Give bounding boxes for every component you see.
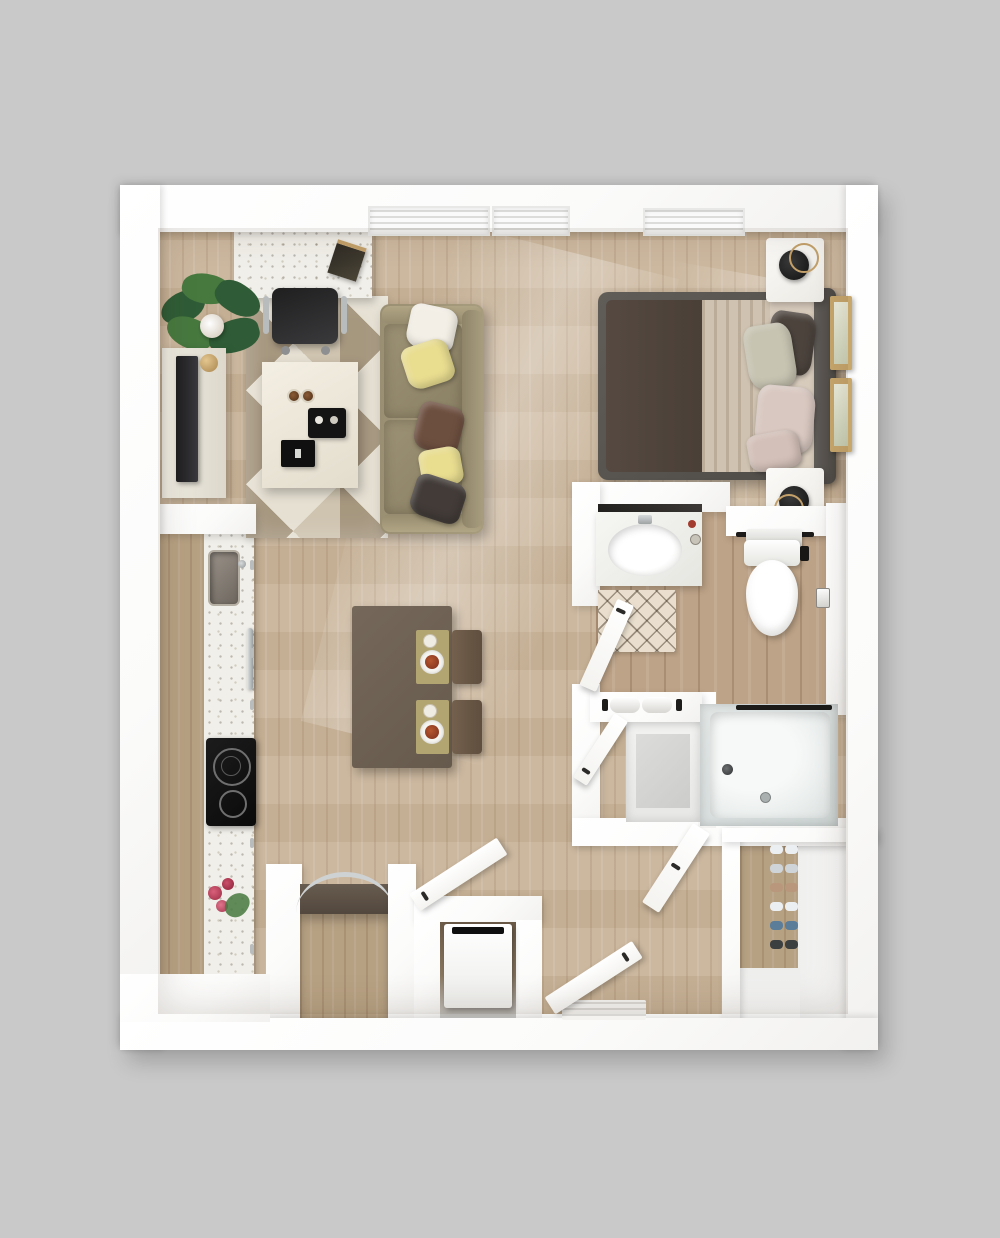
office-chair-wheel-2 bbox=[321, 346, 330, 355]
shoe-pair bbox=[785, 845, 798, 854]
door-handle bbox=[581, 767, 591, 775]
bathtub-towel-bar bbox=[736, 705, 832, 710]
pass-through-counter bbox=[144, 504, 256, 534]
coffee-cup-1 bbox=[287, 389, 301, 403]
shoe-pair bbox=[770, 845, 783, 854]
office-chair-arm-right bbox=[341, 296, 347, 334]
toilet-paper-holder bbox=[816, 588, 830, 608]
decor-dish bbox=[200, 354, 218, 372]
cabinet-handle bbox=[250, 838, 254, 848]
shoe-pair bbox=[785, 940, 798, 949]
vanity-cup bbox=[690, 534, 701, 545]
entry-mat bbox=[562, 1000, 646, 1020]
wall-art-canvas bbox=[834, 302, 848, 364]
bathtub-drain bbox=[760, 792, 771, 803]
tray-bottle bbox=[315, 416, 323, 424]
alcove-pillar-mid bbox=[388, 864, 416, 1020]
wall-art-1 bbox=[830, 296, 852, 370]
washer-frame-left bbox=[414, 920, 440, 1020]
kitchen-sink bbox=[208, 550, 240, 606]
small-cup bbox=[423, 704, 437, 718]
decor-tray bbox=[308, 408, 346, 438]
flower-vase bbox=[202, 876, 254, 932]
food bbox=[425, 655, 439, 669]
linen-closet-floor bbox=[636, 734, 690, 808]
plant-pot bbox=[200, 314, 224, 338]
arc-cabinet-face bbox=[300, 914, 390, 1018]
potted-plant bbox=[156, 274, 268, 358]
clock-gold-ring-top bbox=[789, 243, 819, 273]
cabinet-handle bbox=[250, 700, 254, 710]
bed-blanket bbox=[606, 300, 704, 472]
bath-wall-east-strip bbox=[826, 503, 848, 715]
decor-box-clasp bbox=[295, 449, 301, 458]
washer-vent bbox=[452, 927, 504, 934]
shoe-pair bbox=[785, 921, 798, 930]
food bbox=[425, 725, 439, 739]
flower bbox=[208, 886, 222, 900]
cooktop-burner-large-inner bbox=[221, 756, 241, 776]
towel-bracket-left bbox=[602, 699, 608, 711]
door-handle bbox=[670, 862, 681, 871]
cooktop-burner-small bbox=[219, 790, 247, 818]
wall-art-canvas bbox=[834, 384, 848, 446]
decor-box bbox=[281, 440, 315, 467]
tv bbox=[176, 356, 198, 482]
shoe-pair bbox=[770, 921, 783, 930]
oven-handle bbox=[247, 628, 253, 690]
dining-chair-1 bbox=[452, 630, 482, 684]
office-chair-wheel-1 bbox=[281, 346, 290, 355]
place-setting-1 bbox=[416, 630, 449, 684]
shoe-rack bbox=[768, 845, 802, 967]
shoe-pair bbox=[770, 864, 783, 873]
shoe-pair bbox=[770, 902, 783, 911]
outer-wall-bottom-left-patch bbox=[120, 974, 270, 1022]
washer-frame-right bbox=[516, 920, 542, 1020]
shoe-pair bbox=[785, 864, 798, 873]
tray-bottle bbox=[330, 416, 338, 424]
closet-wall-left bbox=[722, 828, 740, 1022]
kitchen-faucet bbox=[238, 560, 246, 568]
floor-plan-canvas bbox=[0, 0, 1000, 1238]
cabinet-handle bbox=[250, 648, 254, 658]
office-chair bbox=[272, 288, 338, 344]
bathtub-faucet bbox=[722, 764, 733, 775]
toilet-flush bbox=[800, 546, 809, 561]
flower bbox=[222, 878, 234, 890]
cabinet-handle bbox=[250, 560, 254, 570]
rolled-towel-1 bbox=[610, 697, 640, 713]
outer-wall-bottom bbox=[120, 1018, 878, 1050]
door-handle bbox=[420, 891, 429, 902]
window-bedroom bbox=[643, 208, 745, 236]
small-cup bbox=[423, 634, 437, 648]
door-handle bbox=[621, 952, 630, 963]
window-living-1 bbox=[368, 206, 490, 236]
coffee-cup-2 bbox=[301, 389, 315, 403]
towel-bracket-right bbox=[676, 699, 682, 711]
window-living-2 bbox=[492, 206, 570, 236]
vanity-faucet bbox=[638, 515, 652, 524]
vanity-soap bbox=[688, 520, 696, 528]
place-setting-2 bbox=[416, 700, 449, 754]
wall-art-2 bbox=[830, 378, 852, 452]
alcove-pillar-left bbox=[266, 864, 302, 1020]
outer-wall-left bbox=[120, 185, 160, 1050]
shoe-pair bbox=[785, 883, 798, 892]
washer-dryer bbox=[444, 924, 512, 1008]
vanity-sink-basin bbox=[608, 524, 682, 576]
shoe-pair bbox=[770, 940, 783, 949]
door-handle bbox=[615, 607, 626, 615]
flower-leaves bbox=[221, 888, 253, 922]
dining-chair-2 bbox=[452, 700, 482, 754]
shoe-closet-back bbox=[798, 842, 848, 1026]
rolled-towel-2 bbox=[642, 697, 672, 713]
shoe-pair bbox=[785, 902, 798, 911]
shoe-pair bbox=[770, 883, 783, 892]
cabinet-handle bbox=[250, 944, 254, 954]
